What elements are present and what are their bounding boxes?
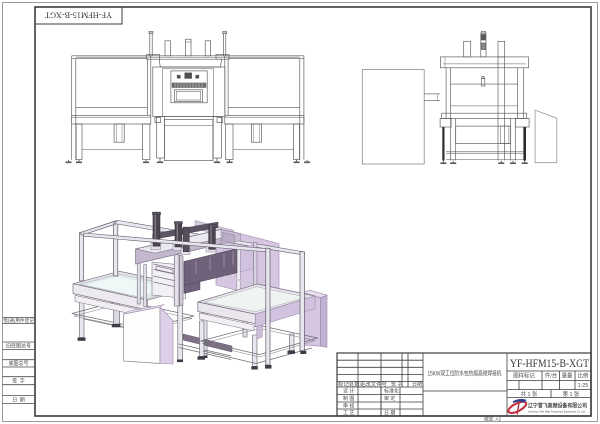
- svg-text:重量: 重量: [562, 372, 573, 380]
- svg-text:缩放: A2: 缩放: A2: [484, 416, 502, 423]
- svg-text:件/台: 件/台: [545, 372, 557, 380]
- svg-text:1:25: 1:25: [578, 383, 589, 389]
- svg-text:Liaoning Yufei High Frequency: Liaoning Yufei High Frequency Equipment …: [528, 410, 585, 414]
- svg-text:签 字: 签 字: [12, 378, 25, 385]
- svg-text:工 艺: 工 艺: [343, 411, 354, 417]
- svg-text:辽宁誉飞高频设备有限公司: 辽宁誉飞高频设备有限公司: [528, 402, 587, 410]
- svg-text:签 字: 签 字: [391, 381, 402, 388]
- svg-text:比例: 比例: [578, 372, 589, 380]
- svg-text:标准化: 标准化: [384, 388, 399, 395]
- svg-text:日 期: 日 期: [384, 411, 395, 417]
- svg-text:制 图: 制 图: [343, 395, 354, 402]
- svg-text:底图总号: 底图总号: [8, 360, 28, 367]
- svg-text:图样标记: 图样标记: [513, 372, 535, 380]
- svg-text:YF-HFM15-B-XGT: YF-HFM15-B-XGT: [510, 358, 589, 370]
- svg-text:共 1 张: 共 1 张: [521, 390, 538, 398]
- svg-text:日期: 日期: [412, 382, 422, 388]
- svg-text:第 1 张: 第 1 张: [563, 390, 580, 398]
- svg-text:借(通)用件登记: 借(通)用件登记: [3, 317, 34, 324]
- svg-text:审 核: 审 核: [343, 402, 354, 409]
- svg-text:YF-HFM15-B-XGT: YF-HFM15-B-XGT: [44, 11, 112, 21]
- svg-text:日 期: 日 期: [12, 397, 25, 403]
- svg-text:标记处数更改文件号: 标记处数更改文件号: [338, 381, 387, 388]
- svg-text:15KW双工位防水包热熔高频焊接机: 15KW双工位防水包热熔高频焊接机: [428, 370, 503, 378]
- svg-text:旧底图总号: 旧底图总号: [6, 343, 31, 350]
- svg-text:设 计: 设 计: [343, 388, 354, 395]
- svg-text:审 定: 审 定: [384, 395, 395, 402]
